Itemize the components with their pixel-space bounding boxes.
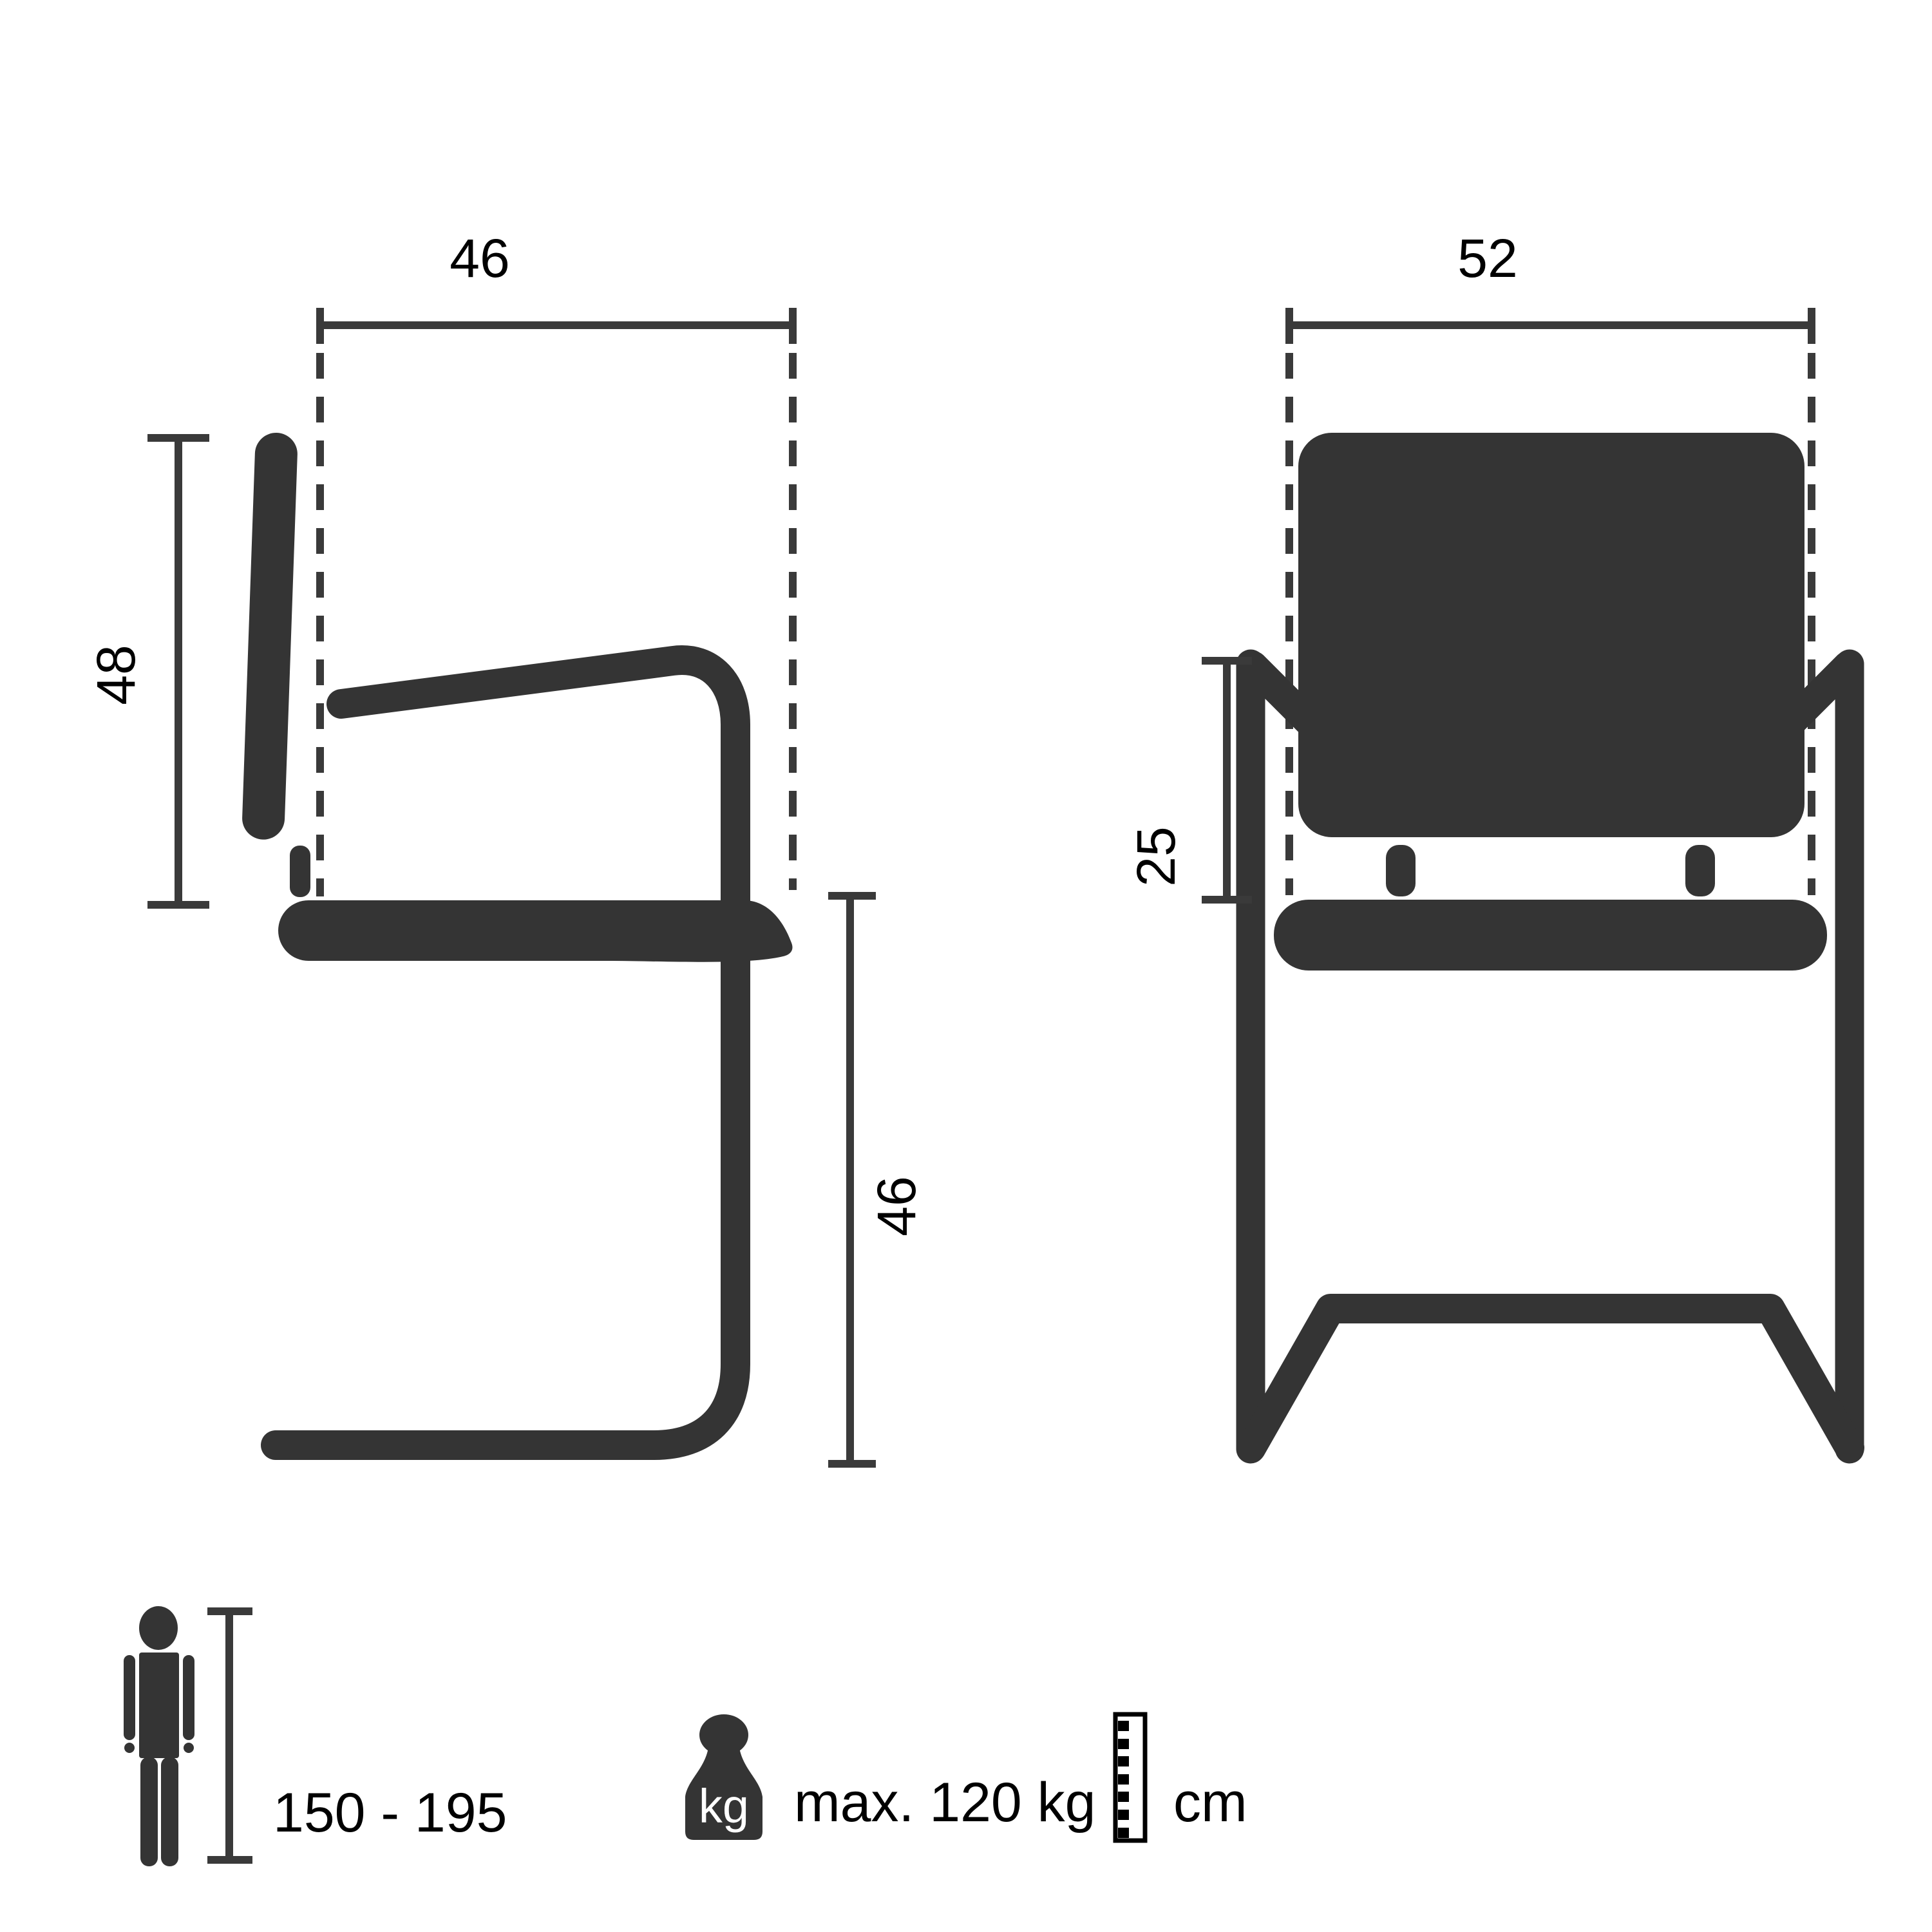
front-frame-base <box>1251 1309 1850 1448</box>
backrest-connector-right <box>1685 845 1715 896</box>
dim-label-seat-height: 46 <box>866 1176 927 1236</box>
front-view: 52 25 <box>1126 228 1850 1449</box>
person-height-range-label: 150 - 195 <box>273 1782 507 1844</box>
dim-front-width: 52 <box>1289 228 1812 344</box>
ruler-tick <box>1118 1774 1129 1785</box>
person-hand-left <box>124 1743 135 1753</box>
max-weight-label: max. 120 kg <box>794 1772 1095 1833</box>
person-leg-left <box>140 1757 158 1866</box>
dim-back-height: 48 <box>86 438 209 905</box>
dimension-diagram: 46 48 46 52 <box>0 0 1932 1932</box>
front-backrest <box>1298 433 1804 837</box>
dim-label-back-height: 48 <box>86 645 146 705</box>
dim-label-front-width: 52 <box>1457 228 1517 289</box>
dim-armrest-height: 25 <box>1126 661 1252 900</box>
ruler-icon <box>1115 1714 1145 1841</box>
front-seat <box>1274 900 1827 971</box>
person-arm-right <box>183 1655 194 1740</box>
weight-icon: kg <box>685 1714 762 1840</box>
person-head <box>139 1606 178 1650</box>
cm-label: cm <box>1173 1772 1247 1833</box>
backrest-connector-left <box>1386 845 1416 896</box>
person-hand-right <box>184 1743 194 1753</box>
diagram-svg: 46 48 46 52 <box>0 0 1932 1932</box>
dim-seat-height: 46 <box>828 896 927 1464</box>
backrest-side <box>241 432 298 840</box>
ruler-tick <box>1118 1810 1129 1820</box>
person-arm-left <box>124 1655 135 1740</box>
side-view: 46 48 46 <box>86 228 927 1464</box>
frame-side <box>276 660 735 1445</box>
person-height-dimension <box>207 1611 252 1860</box>
seat-side <box>278 900 792 962</box>
dim-label-armrest-height: 25 <box>1126 826 1186 886</box>
ruler-tick <box>1118 1756 1129 1766</box>
weight-kg-label: kg <box>699 1779 749 1833</box>
backrest-connector-side <box>290 846 310 897</box>
dim-top-width-side: 46 <box>320 228 793 344</box>
dim-label-top-width-side: 46 <box>450 228 509 289</box>
ruler-tick <box>1118 1792 1129 1802</box>
person-leg-right <box>161 1757 178 1866</box>
legend-row: 150 - 195 kg max. 120 kg cm <box>124 1606 1247 1866</box>
ruler-tick <box>1118 1828 1129 1838</box>
ruler-tick <box>1118 1739 1129 1749</box>
person-icon <box>124 1606 194 1866</box>
person-torso <box>139 1653 179 1758</box>
ruler-tick <box>1118 1721 1129 1731</box>
